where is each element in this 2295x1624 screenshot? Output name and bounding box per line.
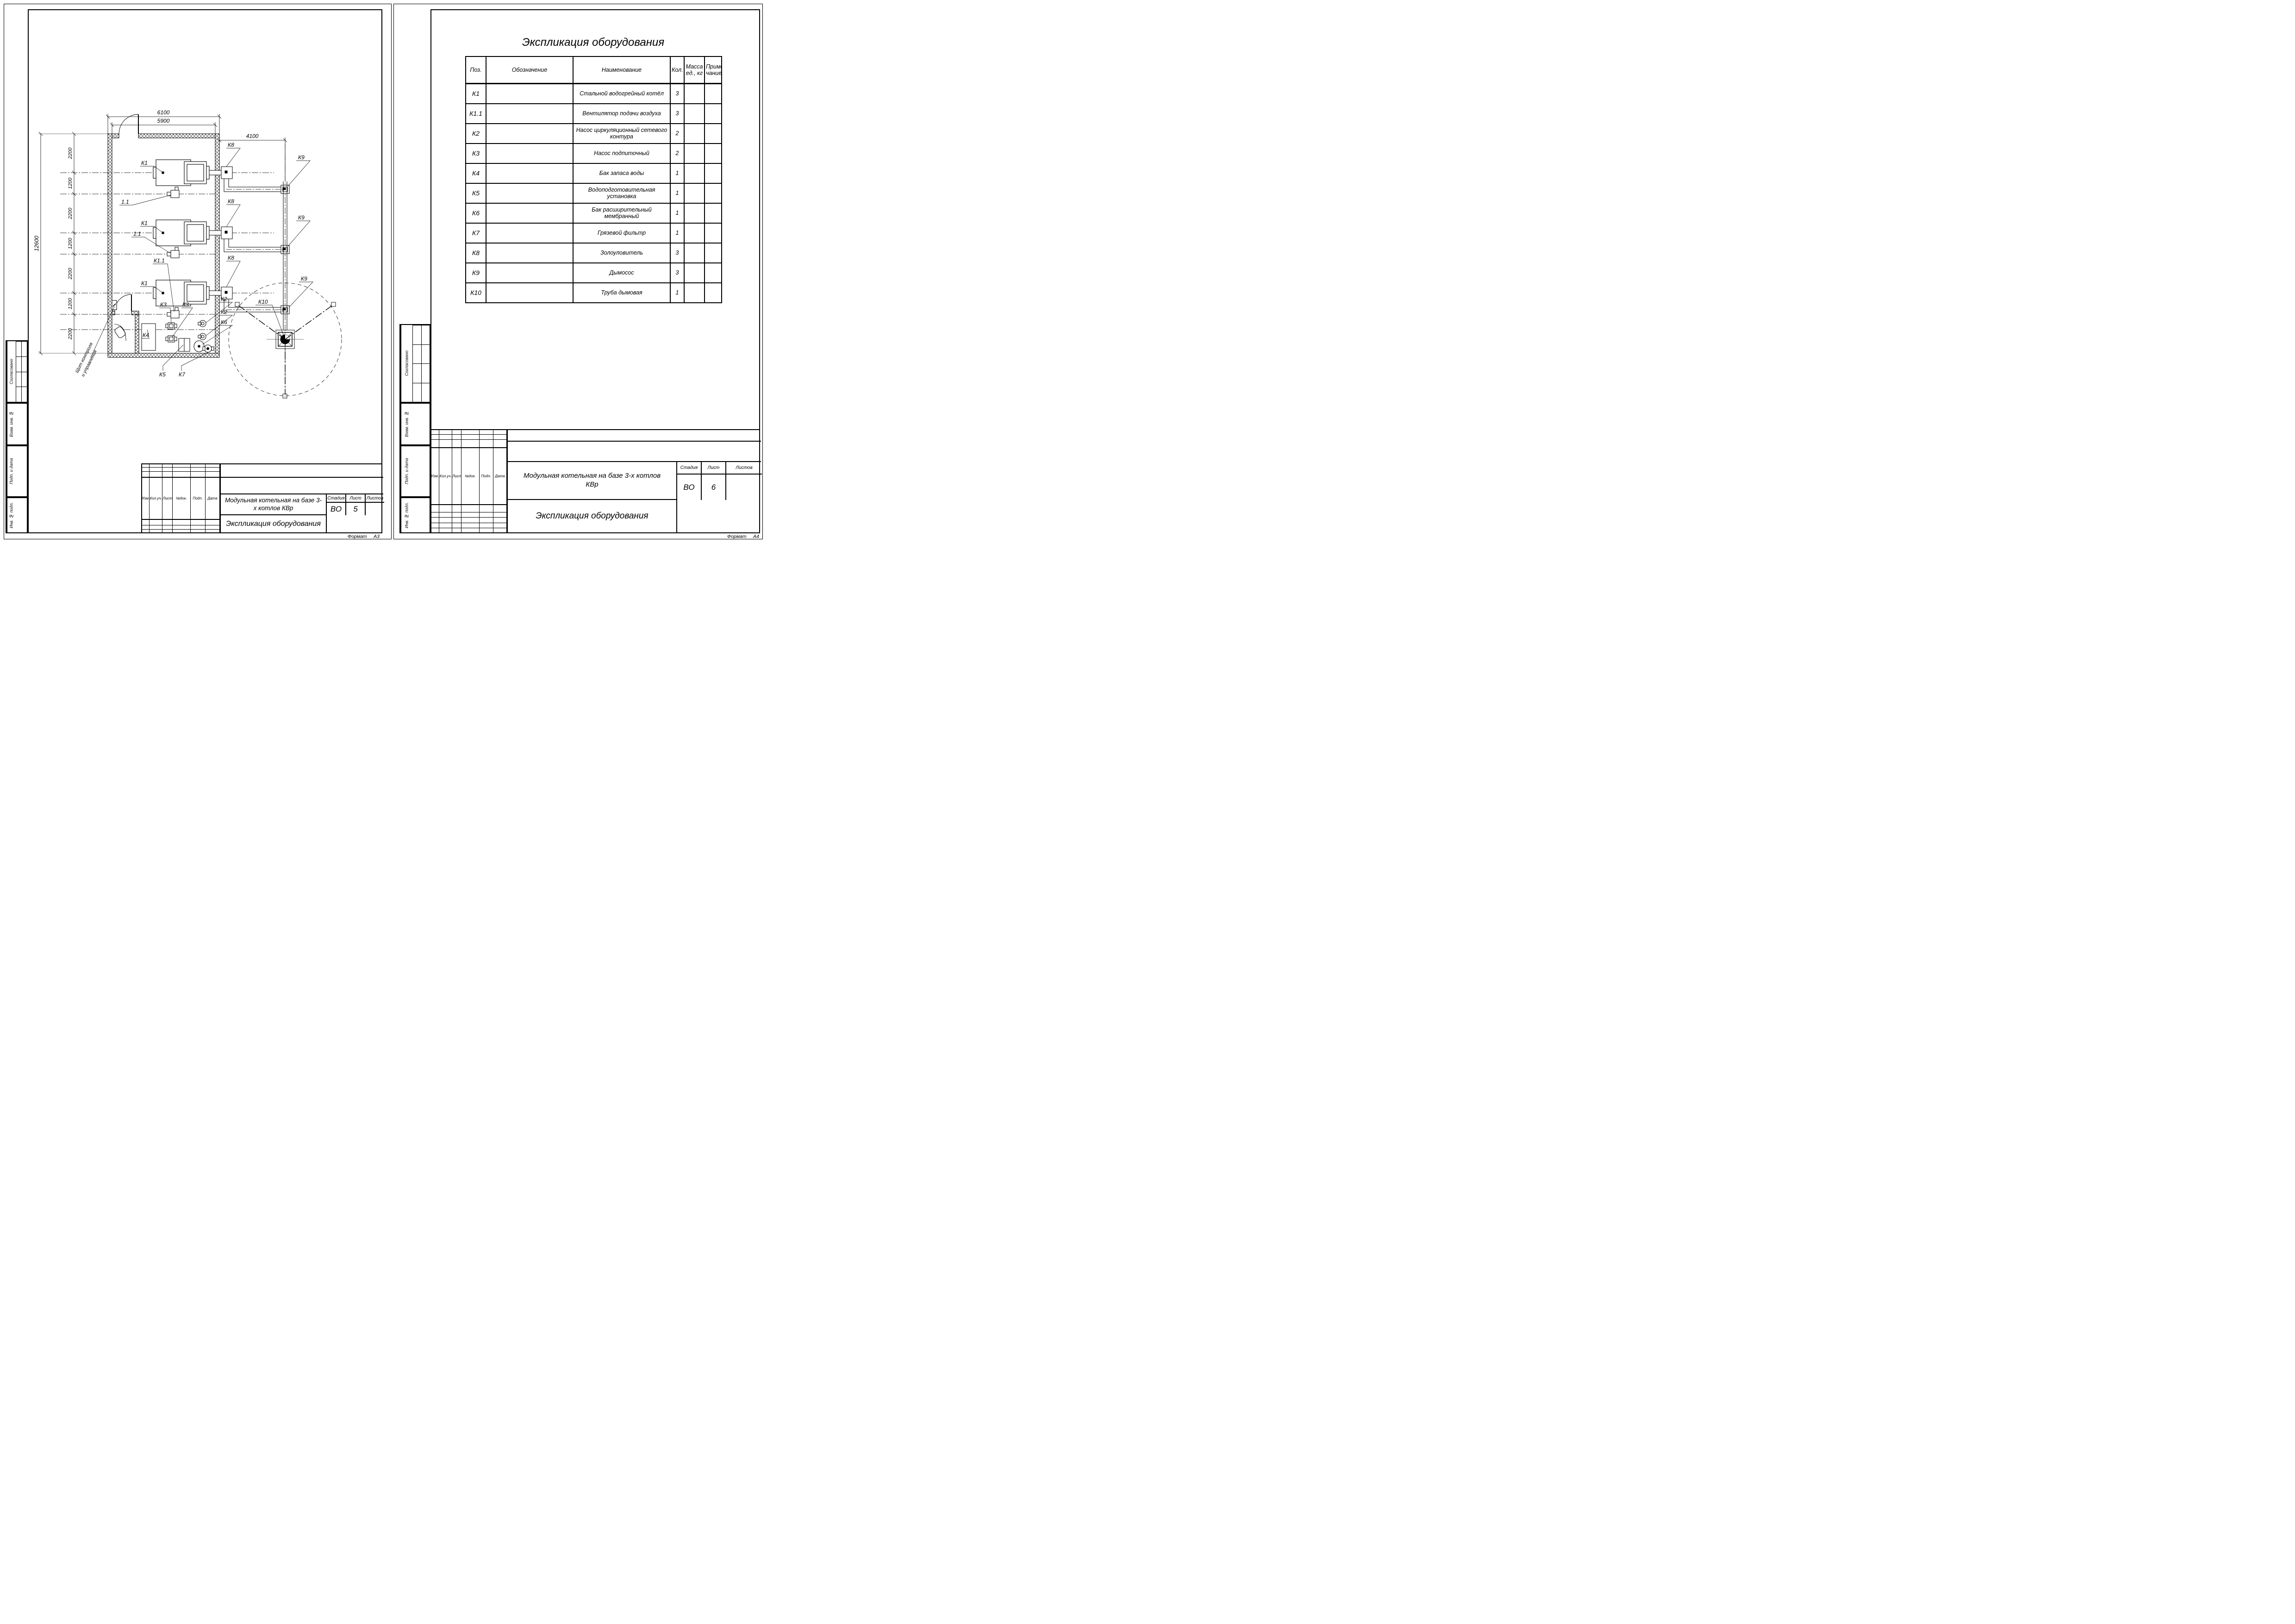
dim-12600: 12600 <box>33 236 40 251</box>
row-qty: 1 <box>670 183 684 203</box>
left-title-block: Изм. Кол.уч. Лист №док. Подп. Дата Модул… <box>141 463 382 533</box>
stage-label: Стадия <box>326 494 345 503</box>
row-note <box>705 84 722 104</box>
table-row: К6Бак расширительный мембранный1 <box>466 203 722 223</box>
table-row: К10Труба дымовая1 <box>466 283 722 303</box>
sheet-value: 5 <box>345 503 365 515</box>
row-designation <box>486 163 573 183</box>
row-name: Бак расширительный мембранный <box>573 203 670 223</box>
col-ndok: №док. <box>461 448 479 505</box>
row-qty: 2 <box>670 124 684 144</box>
row-name: Грязевой фильтр <box>573 223 670 243</box>
row-qty: 3 <box>670 104 684 124</box>
label-k2-2: К2 <box>221 309 227 315</box>
row-pos: К1 <box>466 84 486 104</box>
dim-6100: 6100 <box>157 109 170 116</box>
row-mass <box>684 263 705 283</box>
col-list: Лист <box>452 448 461 505</box>
project-title: Модульная котельная на базе 3-х котлов К… <box>221 494 326 515</box>
header-designation: Обозначение <box>486 56 573 84</box>
table-row: К1.1Вентилятор подачи воздуха3 <box>466 104 722 124</box>
row-name: Бак запаса воды <box>573 163 670 183</box>
doc-code-band-2 <box>221 478 383 494</box>
row-designation <box>486 263 573 283</box>
strip-agreed-right: Согласовано <box>399 324 430 403</box>
label-k8-1: К8 <box>228 142 234 148</box>
stage-label: Стадия <box>676 462 701 475</box>
row-name: Труба дымовая <box>573 283 670 303</box>
table-row: К3Насос подпиточный2 <box>466 144 722 163</box>
label-k7: К7 <box>179 371 186 378</box>
row-mass <box>684 84 705 104</box>
dim-4100: 4100 <box>246 133 259 139</box>
row-note <box>705 124 722 144</box>
boiler-2 <box>153 220 209 246</box>
table-row: К2Насос циркуляционный сетевого контура2 <box>466 124 722 144</box>
label-k9-1: К9 <box>298 154 305 161</box>
chain-3: 2200 <box>68 207 73 219</box>
row-mass <box>684 223 705 243</box>
sheets-value <box>725 475 762 500</box>
stage-value: ВО <box>326 503 345 515</box>
row-mass <box>684 183 705 203</box>
inv-num-label-right: Инв. № подл. <box>400 498 412 532</box>
table-row: К9Дымосос3 <box>466 263 722 283</box>
row-designation <box>486 223 573 243</box>
chain-2: 1200 <box>68 177 73 189</box>
row-pos: К10 <box>466 283 486 303</box>
row-note <box>705 144 722 163</box>
label-k1-1: К1 <box>141 160 148 166</box>
row-name: Насос циркуляционный сетевого контура <box>573 124 670 144</box>
header-note: Приме-чание <box>705 56 722 84</box>
row-designation <box>486 144 573 163</box>
row-designation <box>486 84 573 104</box>
row-qty: 3 <box>670 263 684 283</box>
format-value: А4 <box>753 534 759 539</box>
replace-inv-cell-right <box>412 404 430 444</box>
label-k1-2: К1 <box>141 220 148 226</box>
format-label: Формат <box>727 534 747 539</box>
doc-title: Экспликация оборудования <box>221 515 326 532</box>
row-qty: 3 <box>670 84 684 104</box>
row-qty: 2 <box>670 144 684 163</box>
row-pos: К8 <box>466 243 486 263</box>
row-designation <box>486 183 573 203</box>
label-k10: К10 <box>258 299 268 305</box>
label-k9-2: К9 <box>298 214 305 221</box>
table-row: К7Грязевой фильтр1 <box>466 223 722 243</box>
table-row: К5Водоподготовительная установка1 <box>466 183 722 203</box>
row-pos: К7 <box>466 223 486 243</box>
label-k2-1: К2 <box>221 296 227 302</box>
equipment <box>112 300 214 352</box>
row-qty: 1 <box>670 223 684 243</box>
door-arcs <box>115 114 138 311</box>
row-name: Дымосос <box>573 263 670 283</box>
row-name: Золоуловитель <box>573 243 670 263</box>
table-row: К8Золоуловитель3 <box>466 243 722 263</box>
row-qty: 1 <box>670 163 684 183</box>
row-designation <box>486 243 573 263</box>
doc-title: Экспликация оборудования <box>508 500 676 532</box>
left-format-stamp: Формат А3 <box>306 534 380 539</box>
replace-inv-label-right: Взам. инв. № <box>400 404 412 444</box>
sheets-label: Листов <box>365 494 384 503</box>
col-podp: Подп. <box>190 477 205 520</box>
right-title-block: Изм. Кол.уч. Лист №док. Подп. Дата Модул… <box>430 429 760 533</box>
equipment-table: Поз. Обозначение Наименование Кол. Масса… <box>465 56 722 303</box>
strip-sign-date-right: Подп. и дата <box>399 445 430 497</box>
label-k5: К5 <box>159 371 166 378</box>
duct-centerlines <box>226 189 285 310</box>
table-row: К1Стальной водогрейный котёл3 <box>466 84 722 104</box>
row-note <box>705 263 722 283</box>
row-qty: 3 <box>670 243 684 263</box>
stage-table: Стадия Лист Листов ВО 5 <box>326 494 384 515</box>
label-fan-2: 1.1 <box>133 231 141 237</box>
right-revision-table: Изм. Кол.уч. Лист №док. Подп. Дата <box>430 429 507 533</box>
col-podp: Подп. <box>479 448 493 505</box>
agreed-label-right: Согласовано <box>400 325 412 402</box>
row-pos: К6 <box>466 203 486 223</box>
sheet-label: Лист <box>345 494 365 503</box>
sheets-value <box>365 503 384 515</box>
stage-table: Стадия Лист Листов ВО 6 <box>676 462 762 500</box>
row-mass <box>684 144 705 163</box>
header-name: Наименование <box>573 56 670 84</box>
row-qty: 1 <box>670 283 684 303</box>
row-note <box>705 203 722 223</box>
row-pos: К4 <box>466 163 486 183</box>
header-qty: Кол. <box>670 56 684 84</box>
col-list: Лист <box>162 477 173 520</box>
label-k9-3: К9 <box>301 275 307 282</box>
strip-inv-num-right: Инв. № подл. <box>399 497 430 533</box>
row-note <box>705 183 722 203</box>
col-ndok: №док. <box>173 477 190 520</box>
flue-system <box>209 167 289 330</box>
chain-7: 2200 <box>68 328 73 340</box>
doc-code-band-2 <box>508 442 761 462</box>
chain-5: 2200 <box>68 268 73 280</box>
agreed-grid-right <box>412 325 430 402</box>
project-title: Модульная котельная на базе 3-х котлов К… <box>508 462 676 500</box>
boiler-1 <box>153 160 209 186</box>
row-note <box>705 163 722 183</box>
row-mass <box>684 124 705 144</box>
row-name: Вентилятор подачи воздуха <box>573 104 670 124</box>
label-k8-3: К8 <box>228 255 234 261</box>
label-k1-3: К1 <box>141 280 148 287</box>
sheet-value: 6 <box>701 475 725 500</box>
left-revision-table: Изм. Кол.уч. Лист №док. Подп. Дата <box>141 463 220 533</box>
row-mass <box>684 163 705 183</box>
col-koluch: Кол.уч. <box>150 477 162 520</box>
row-mass <box>684 283 705 303</box>
label-k3-2: К3 <box>182 301 189 308</box>
format-label: Формат <box>348 534 367 539</box>
row-mass <box>684 104 705 124</box>
row-qty: 1 <box>670 203 684 223</box>
sheets-label: Листов <box>725 462 762 475</box>
chain-1: 2200 <box>68 147 73 159</box>
row-note <box>705 283 722 303</box>
label-k6: К6 <box>221 319 227 325</box>
row-name: Водоподготовительная установка <box>573 183 670 203</box>
row-pos: К1.1 <box>466 104 486 124</box>
guy-lines <box>238 305 333 394</box>
row-note <box>705 223 722 243</box>
doc-code-band-1 <box>508 430 761 442</box>
row-note <box>705 104 722 124</box>
right-format-stamp: Формат А4 <box>685 534 759 539</box>
label-k8-2: К8 <box>228 198 234 205</box>
strip-replace-inv-right: Взам. инв. № <box>399 403 430 445</box>
col-izm: Изм. <box>431 448 439 505</box>
table-row: К4Бак запаса воды1 <box>466 163 722 183</box>
row-designation <box>486 283 573 303</box>
col-data: Дата <box>493 448 506 505</box>
row-name: Стальной водогрейный котёл <box>573 84 670 104</box>
row-mass <box>684 203 705 223</box>
col-koluch: Кол.уч. <box>439 448 452 505</box>
label-k1_1: К1.1 <box>154 257 165 264</box>
dim-5900: 5900 <box>157 118 170 124</box>
header-mass: Масса ед., кг <box>684 56 705 84</box>
row-note <box>705 243 722 263</box>
row-pos: К2 <box>466 124 486 144</box>
format-value: А3 <box>374 534 380 539</box>
doc-title-right-cell <box>676 500 762 532</box>
doc-code-band-1 <box>221 464 383 478</box>
row-pos: К5 <box>466 183 486 203</box>
row-name: Насос подпиточный <box>573 144 670 163</box>
row-mass <box>684 243 705 263</box>
sign-date-label-right: Подп. и дата <box>400 446 412 496</box>
label-k4: К4 <box>143 332 149 338</box>
col-izm: Изм. <box>142 477 150 520</box>
header-pos: Поз. <box>466 56 486 84</box>
chain-4: 1200 <box>68 237 73 249</box>
row-designation <box>486 104 573 124</box>
label-k3-1: К3 <box>160 301 167 308</box>
table-title: Экспликация оборудования <box>465 36 721 49</box>
row-pos: К3 <box>466 144 486 163</box>
row-designation <box>486 124 573 144</box>
label-fan-1: 1.1 <box>121 199 129 205</box>
stage-value: ВО <box>676 475 701 500</box>
col-data: Дата <box>205 477 219 520</box>
drawing-page: { "left_sheet": { "format_label": "Форма… <box>0 0 765 542</box>
row-designation <box>486 203 573 223</box>
doc-title-right-cell <box>326 515 384 532</box>
inv-num-cell-right <box>412 498 430 532</box>
sheet-label: Лист <box>701 462 725 475</box>
row-pos: К9 <box>466 263 486 283</box>
chain-6: 1200 <box>68 298 73 309</box>
sign-date-cell-right <box>412 446 430 496</box>
table-header-row: Поз. Обозначение Наименование Кол. Масса… <box>466 56 722 84</box>
